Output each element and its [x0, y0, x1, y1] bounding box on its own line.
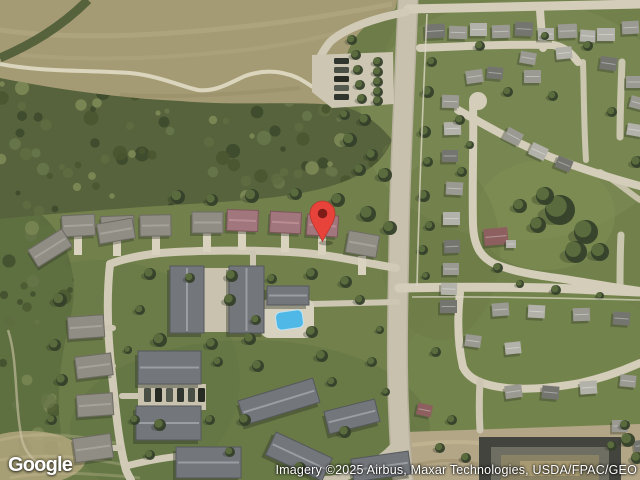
pool — [275, 309, 304, 331]
cul-de-sac — [469, 92, 487, 110]
satellite-imagery — [0, 0, 640, 480]
google-logo[interactable]: Google — [8, 454, 72, 477]
main-road — [397, 0, 408, 480]
pin-shadow — [319, 241, 333, 246]
satellite-map[interactable]: Google Imagery ©2025 Airbus, Maxar Techn… — [0, 0, 640, 480]
map-attribution: Imagery ©2025 Airbus, Maxar Technologies… — [275, 463, 637, 477]
